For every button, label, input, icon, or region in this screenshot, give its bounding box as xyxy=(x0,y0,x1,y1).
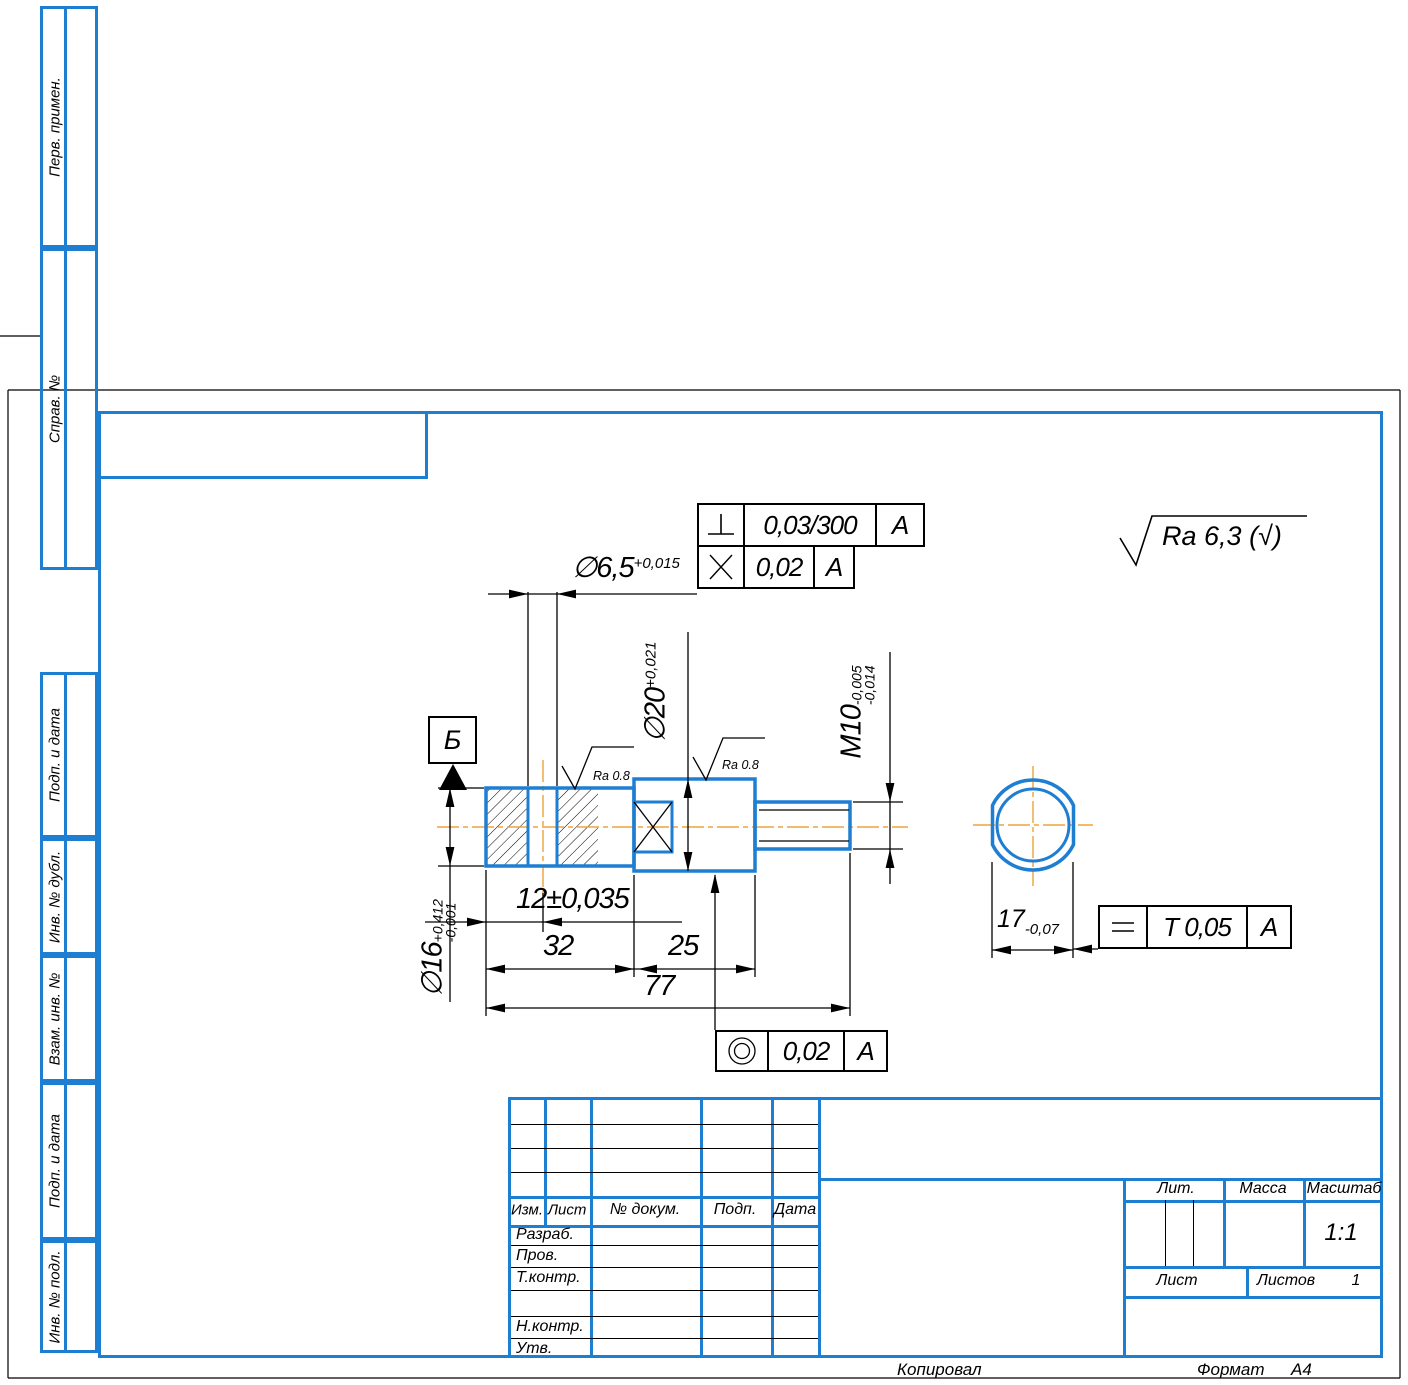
tb-col-podp: Подп. xyxy=(714,1201,757,1219)
margin-label: Инв. № подл. xyxy=(47,1250,64,1343)
margin-box: Взам. инв. № xyxy=(40,955,98,1082)
tb-col-list: Лист xyxy=(548,1202,587,1219)
tolerance-value: Т 0,05 xyxy=(1146,907,1246,947)
tb-line xyxy=(1303,1178,1306,1266)
margin-label: Справ. № xyxy=(47,375,64,443)
tb-line xyxy=(818,1178,1380,1181)
tb-line xyxy=(1223,1178,1226,1266)
tb-line xyxy=(511,1196,821,1199)
designation-box xyxy=(98,411,428,479)
tb-thin-line xyxy=(511,1124,818,1125)
tb-massa-label: Масса xyxy=(1239,1180,1286,1198)
divider xyxy=(64,251,67,567)
tb-thin-line xyxy=(511,1290,818,1291)
tb-thin-line xyxy=(511,1267,818,1268)
divider xyxy=(64,1243,67,1350)
tb-row-utv: Утв. xyxy=(516,1340,552,1358)
tb-lit-label: Лит. xyxy=(1157,1180,1194,1198)
dim-dia65: ∅6,5+0,015 xyxy=(572,550,680,585)
margin-box: Инв. № подл. xyxy=(40,1240,98,1353)
margin-label: Взам. инв. № xyxy=(47,972,64,1065)
tb-thin-line xyxy=(1165,1200,1166,1266)
margin-label: Подп. и дата xyxy=(47,1114,64,1208)
margin-label: Перв. примен. xyxy=(47,77,64,177)
tb-col-ndokum: № докум. xyxy=(610,1201,680,1219)
local-roughness: Ra 0.8 xyxy=(593,769,630,783)
dim-32: 32 xyxy=(543,930,573,963)
fcf-perpendicularity: 0,03/300 А xyxy=(697,503,925,547)
tb-col-data: Дата xyxy=(774,1201,816,1219)
format-label: Формат xyxy=(1197,1360,1265,1380)
tolerance-value: 0,02 xyxy=(767,1032,843,1070)
margin-box: Подп. и дата xyxy=(40,672,98,838)
margin-box: Перв. примен. xyxy=(40,6,98,248)
tolerance-value: 0,03/300 xyxy=(743,505,875,545)
tb-list-label: Лист xyxy=(1156,1272,1197,1290)
dim-77: 77 xyxy=(644,970,674,1003)
tb-row-nkontr: Н.контр. xyxy=(516,1318,584,1336)
dim-tolerance: -0,005-0,014 xyxy=(851,665,877,705)
tb-line xyxy=(1123,1296,1380,1299)
axes-crossing-icon xyxy=(699,547,743,587)
tb-row-razrab: Разраб. xyxy=(516,1226,574,1244)
dim-17: 17-0,07 xyxy=(997,905,1059,938)
parallelism-icon xyxy=(1100,907,1146,947)
divider xyxy=(64,675,67,835)
general-roughness: Ra 6,3 (√) xyxy=(1162,521,1282,552)
dim-value: 17 xyxy=(997,905,1025,933)
margin-label: Инв. № дубл. xyxy=(47,850,64,942)
tb-line xyxy=(1246,1266,1249,1296)
margin-box: Справ. № xyxy=(40,248,98,570)
margin-box: Инв. № дубл. xyxy=(40,838,98,955)
dim-dia16: ∅16+0,412-0,001 xyxy=(415,899,458,997)
tb-thin-line xyxy=(511,1338,818,1339)
margin-label: Подп. и дата xyxy=(47,708,64,802)
margin-box: Подп. и дата xyxy=(40,1082,98,1240)
divider xyxy=(64,958,67,1079)
fcf-axes-crossing: 0,02 А xyxy=(697,545,855,589)
divider xyxy=(64,1085,67,1237)
drawing-sheet: Перв. примен. Справ. № Подп. и дата Инв.… xyxy=(0,0,1408,1385)
tb-col-izm: Изм. xyxy=(511,1202,543,1219)
tb-line xyxy=(544,1100,547,1225)
fcf-parallelism: Т 0,05 А xyxy=(1098,905,1292,949)
tb-line xyxy=(1123,1266,1380,1269)
datum-ref: А xyxy=(875,505,923,545)
concentricity-icon xyxy=(717,1032,767,1070)
dim-tolerance: -0,07 xyxy=(1025,921,1059,938)
copied-label: Копировал xyxy=(897,1360,982,1380)
tb-thin-line xyxy=(511,1245,818,1246)
divider xyxy=(64,9,67,245)
dim-tolerance: +0,015 xyxy=(634,555,680,572)
tolerance-value: 0,02 xyxy=(743,547,813,587)
tb-listov-label: Листов xyxy=(1257,1272,1315,1290)
dim-12: 12±0,035 xyxy=(516,883,629,916)
tb-thin-line xyxy=(511,1148,818,1149)
datum-ref: А xyxy=(843,1032,886,1070)
tb-row-tkontr: Т.контр. xyxy=(516,1269,581,1287)
dim-tolerance: +0,021 xyxy=(643,642,660,688)
tb-listov-value: 1 xyxy=(1352,1272,1361,1290)
dim-value: M10 xyxy=(836,705,868,758)
tb-thin-line xyxy=(511,1316,818,1317)
title-block: Изм. Лист № докум. Подп. Дата Разраб. Пр… xyxy=(508,1097,1383,1358)
tb-thin-line xyxy=(1193,1200,1194,1266)
datum-label: Б xyxy=(428,716,477,764)
datum-ref: А xyxy=(813,547,853,587)
tb-thin-line xyxy=(511,1172,818,1173)
dim-m10: M10-0,005-0,014 xyxy=(836,665,877,758)
dim-value: ∅6,5 xyxy=(572,552,634,584)
dim-dia20: ∅20+0,021 xyxy=(638,642,673,743)
tb-masshtab-label: Масштаб xyxy=(1307,1180,1382,1198)
format-value: А4 xyxy=(1291,1360,1312,1380)
dim-value: ∅16 xyxy=(417,942,449,997)
tb-row-prov: Пров. xyxy=(516,1247,558,1265)
perpendicularity-icon xyxy=(699,505,743,545)
tb-scale-value: 1:1 xyxy=(1324,1219,1357,1247)
dim-value: ∅20 xyxy=(640,688,672,743)
local-roughness: Ra 0.8 xyxy=(722,758,759,772)
tb-line xyxy=(1123,1200,1380,1203)
datum-ref: А xyxy=(1246,907,1290,947)
fcf-concentricity: 0,02 А xyxy=(715,1030,888,1072)
dim-tolerance: +0,412-0,001 xyxy=(432,899,458,942)
dim-25: 25 xyxy=(668,930,698,963)
divider xyxy=(64,841,67,952)
